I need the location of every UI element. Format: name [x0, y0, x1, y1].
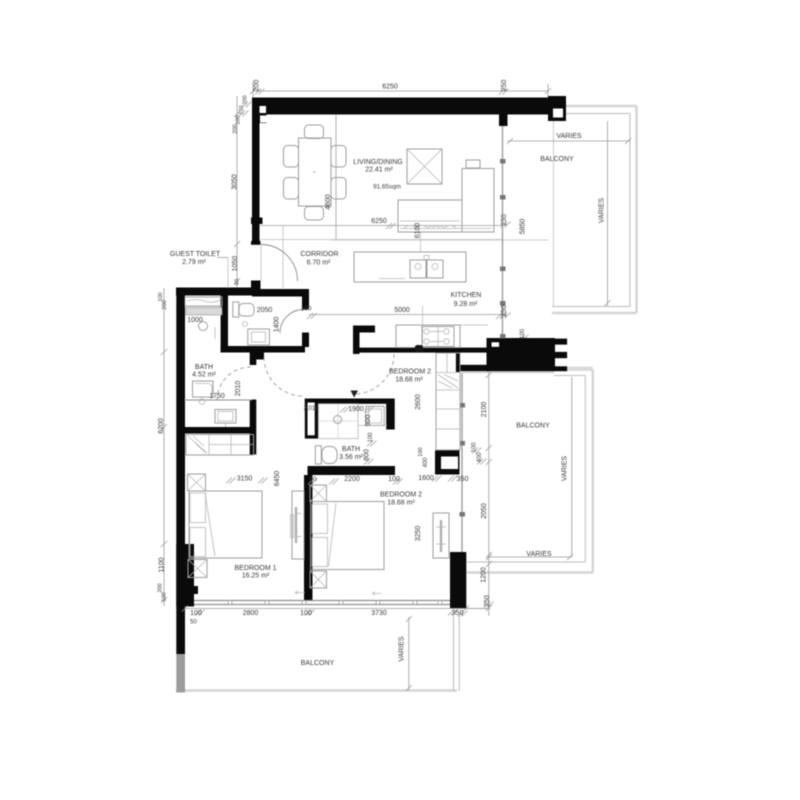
svg-text:18.68 m²: 18.68 m²: [395, 377, 423, 384]
svg-text:200: 200: [242, 95, 248, 104]
svg-text:2050: 2050: [257, 307, 273, 314]
svg-text:100: 100: [235, 115, 241, 124]
svg-text:VARIES: VARIES: [526, 551, 551, 558]
svg-text:BALCONY: BALCONY: [540, 156, 574, 163]
svg-text:100: 100: [301, 306, 312, 313]
svg-text:3050: 3050: [231, 174, 238, 190]
svg-text:100: 100: [158, 292, 164, 301]
svg-text:200: 200: [162, 300, 168, 309]
svg-text:250: 250: [501, 305, 508, 317]
svg-text:1000: 1000: [187, 317, 203, 324]
svg-text:1600: 1600: [418, 475, 434, 482]
svg-text:200: 200: [253, 80, 260, 92]
svg-text:100: 100: [300, 610, 312, 617]
svg-text:4600: 4600: [325, 194, 332, 210]
svg-text:BEDROOM 2: BEDROOM 2: [389, 369, 431, 376]
svg-text:350: 350: [452, 610, 464, 617]
svg-text:KITCHEN: KITCHEN: [451, 292, 482, 299]
svg-text:91.65sqm: 91.65sqm: [373, 184, 401, 191]
svg-text:2200: 2200: [344, 476, 360, 483]
svg-text:100: 100: [368, 432, 374, 443]
svg-text:BATH: BATH: [342, 446, 360, 453]
svg-text:1400: 1400: [273, 317, 280, 333]
svg-text:900: 900: [365, 415, 372, 427]
svg-text:5000: 5000: [394, 307, 410, 314]
svg-text:2600: 2600: [415, 394, 422, 410]
svg-text:BALCONY: BALCONY: [516, 423, 550, 430]
svg-text:6100: 6100: [414, 223, 421, 239]
svg-text:4.52 m²: 4.52 m²: [192, 372, 216, 379]
svg-text:BEDROOM 1: BEDROOM 1: [234, 565, 276, 572]
svg-text:2.79 m²: 2.79 m²: [182, 259, 206, 266]
svg-text:50: 50: [310, 477, 317, 483]
svg-text:LIVING/DINING: LIVING/DINING: [353, 159, 402, 166]
svg-text:3150: 3150: [237, 476, 253, 483]
svg-text:6.70 m²: 6.70 m²: [307, 260, 331, 267]
svg-text:GUEST TOILET: GUEST TOILET: [170, 251, 221, 258]
svg-text:100: 100: [161, 592, 167, 601]
svg-text:400: 400: [423, 457, 429, 468]
svg-text:100: 100: [190, 610, 202, 617]
svg-text:5850: 5850: [519, 219, 526, 235]
svg-text:100: 100: [418, 447, 424, 456]
svg-text:800: 800: [363, 449, 370, 461]
svg-text:400: 400: [477, 452, 483, 463]
svg-text:1050: 1050: [232, 256, 239, 272]
svg-text:VARIES: VARIES: [561, 456, 568, 481]
svg-text:VARIES: VARIES: [556, 133, 581, 140]
svg-text:VARIES: VARIES: [598, 198, 605, 223]
svg-text:3250: 3250: [415, 526, 422, 542]
svg-text:250: 250: [501, 214, 508, 226]
svg-text:1200: 1200: [480, 567, 487, 583]
svg-text:9.28 m²: 9.28 m²: [454, 301, 478, 308]
svg-text:22.41 m²: 22.41 m²: [365, 167, 393, 174]
svg-text:100: 100: [388, 476, 400, 483]
svg-text:BEDROOM 2: BEDROOM 2: [380, 492, 422, 499]
svg-text:3.56 m²: 3.56 m²: [339, 454, 363, 461]
svg-text:1750: 1750: [209, 393, 225, 400]
svg-text:350: 350: [457, 476, 469, 483]
svg-text:6250: 6250: [382, 84, 398, 91]
svg-text:6200: 6200: [158, 418, 165, 434]
svg-text:100: 100: [471, 442, 477, 453]
svg-text:200: 200: [157, 583, 163, 592]
svg-text:2050: 2050: [481, 503, 488, 519]
svg-text:16.25 m²: 16.25 m²: [242, 573, 270, 580]
svg-text:1900: 1900: [348, 406, 364, 413]
svg-text:50: 50: [190, 620, 197, 626]
svg-text:250: 250: [484, 595, 491, 607]
svg-text:3730: 3730: [371, 610, 387, 617]
svg-text:6250: 6250: [371, 218, 387, 225]
svg-text:6450: 6450: [274, 471, 281, 487]
svg-text:2100: 2100: [481, 402, 488, 418]
svg-text:VARIES: VARIES: [398, 636, 405, 661]
svg-text:CORRIDOR: CORRIDOR: [300, 251, 338, 258]
svg-text:2,010: 2,010: [303, 406, 319, 412]
svg-text:18.68 m²: 18.68 m²: [387, 500, 415, 507]
svg-text:BALCONY: BALCONY: [301, 660, 335, 667]
svg-text:1100: 1100: [158, 557, 165, 572]
svg-text:100: 100: [520, 328, 526, 339]
svg-text:2010: 2010: [235, 381, 242, 397]
svg-text:200: 200: [232, 124, 238, 133]
svg-text:2800: 2800: [243, 610, 259, 617]
svg-text:250: 250: [501, 80, 508, 92]
svg-text:BATH: BATH: [195, 364, 213, 371]
svg-text:50: 50: [234, 279, 240, 285]
